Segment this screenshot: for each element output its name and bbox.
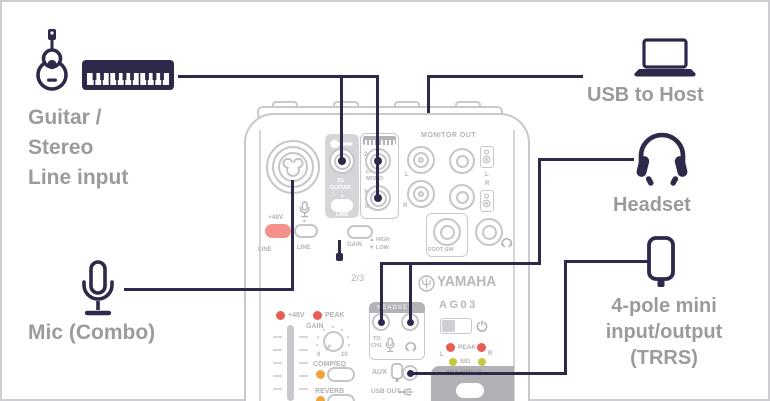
fader-tick [273,362,282,364]
gain-lever [338,240,341,254]
fader-tick [299,362,308,364]
peak-led [313,311,322,320]
monitor-phone-jack-l-inner [456,155,469,168]
meter-sig-led-r [478,358,486,366]
foot-sw-label: FOOT SW [428,248,454,254]
usb-callout-line-h [427,75,583,78]
phones-jack-inner [482,225,497,240]
knob-tick [317,336,319,338]
yamaha-logo-icon [418,275,435,292]
rca-l-label: L [405,172,409,178]
meter-peak-label: PEAK [458,345,476,352]
knob-tick [341,329,343,331]
channel-label: 2/3 [351,274,364,284]
headset-callout-line-h2 [380,262,541,265]
trrs-label-line2: input/output [570,319,758,345]
mic-callout-line-v [291,180,294,291]
jack2-l: L/ [366,170,371,176]
guitar-jack-point [338,157,346,165]
knob-tick [332,326,334,328]
guitar-label-line3: Line input [28,163,128,193]
xlr-socket-icon [281,155,305,179]
meter-peak-led-l [446,343,455,352]
comp-eq-button [327,367,355,382]
phone-icon [644,236,678,288]
mixer-panel-edge-right [513,130,515,401]
guitar-callout-line-h [178,75,379,78]
monitor-r-label: R [485,181,489,187]
trrs-label-line3: (TRRS) [570,345,758,371]
headset-callout-line-v2 [380,262,383,322]
guitar-line-switch [331,199,353,212]
power-icon [476,320,488,332]
trrs-callout-line-v [564,260,567,375]
meter-sig-label: SIG [460,359,470,365]
gain-switch-label: GAIN [347,242,362,248]
line-label-a: LINE [258,247,272,253]
stereo-jack3-point [374,194,382,202]
mic-small-icon [299,201,310,218]
connection-diagram: +48V ▲ LINE LINE 2G GUITAR ▲ LINE [0,0,770,401]
gain-high: ▲ HIGH [369,238,390,244]
knob-tick [323,329,325,331]
microphone-icon [78,260,118,322]
monitor-phone-jack-r-inner [456,191,469,204]
aux-label: AUX [372,369,387,376]
guitar-section-guitar: GUITAR [330,186,351,192]
usb-callout-label: USB to Host [587,84,704,107]
peak-led-label: PEAK [325,312,344,319]
brand-wordmark: YAMAHA [437,275,496,290]
fader-tick [299,375,308,377]
trrs-callout-label: 4-pole mini input/output (TRRS) [570,293,758,371]
keyboard-icon [82,60,174,91]
knob-tick [316,344,318,346]
headphones-icon [631,126,693,186]
mic-callout-line-h [124,288,294,291]
trrs-callout-line-h1 [564,260,648,263]
fader-tick [299,388,308,390]
jack3-r: R [365,205,369,211]
meter-sig-led-l [449,358,457,366]
monitor-l-label: L [485,172,489,178]
rca-r-label: R [403,203,407,209]
guitar-section-2g: 2G [337,179,344,185]
gain-low: ▼ LOW [369,246,389,252]
fader-tick [273,388,282,390]
phantom-led [276,311,285,320]
keyboard-tag [363,136,396,145]
fader-tick [299,349,308,351]
gain-lever-tip [336,253,343,261]
meter-l-label: L [440,352,444,358]
rca-jack-r-pin [418,191,424,197]
monitor-out-title: MONITOR OUT [421,132,476,139]
guitar-icon [34,28,70,94]
knob-tick [348,344,350,346]
guitar-label-line1: Guitar / [28,103,128,133]
headphone-small-icon [404,340,417,352]
speaker-box-r [480,190,494,212]
mixer-panel-edge-left [259,130,261,401]
guitar-section-line: LINE [336,213,349,219]
power-switch-knob [442,320,455,332]
usb-icon [398,387,415,397]
knob-tick [347,336,349,338]
guitar-section-arrow: ▲ [340,194,344,199]
jack2-mono: MONO [366,177,383,183]
to-ch1-label-ch1: CH1 [371,344,382,350]
rca-jack-l-pin [418,157,424,163]
reverb-button [327,394,355,401]
guitar-callout-line-v1 [340,75,343,163]
foot-sw-jack-inner [440,225,455,240]
switch-arrow: ▲ [302,219,306,224]
headset-callout-line-v3 [409,262,412,322]
meter-r-label: R [488,351,492,357]
headset-callout-line-h1 [538,158,634,161]
headset-callout-label: Headset [613,194,691,217]
line-label-b: LINE [297,245,311,251]
guitar-callout-label: Guitar / Stereo Line input [28,103,128,193]
comp-eq-led [316,370,325,379]
usb-out-label: USB OUT [371,389,400,396]
model-wordmark: AG03 [439,300,478,311]
gain-knob-label: GAIN [306,323,324,330]
trrs-label-line1: 4-pole mini [570,293,758,319]
usb-callout-line-v [427,75,430,113]
reverb-led [316,396,325,401]
mix-minus-button [456,383,484,398]
fader-track [287,325,294,401]
speaker-box-l [480,146,494,168]
knob-scale-0: 0 [317,352,320,358]
fader-tick [273,375,282,377]
phantom-switch [265,224,291,238]
phantom-label: +48V [268,215,283,222]
line-switch [294,224,318,238]
mic-small-icon [385,337,395,353]
phantom-led-label: +48V [288,312,305,319]
knob-scale-10: 10 [341,352,348,358]
meter-peak-led-r [477,343,486,352]
fader-tick [273,349,282,351]
guitar-callout-line-v2 [376,75,379,199]
headphone-small-icon [500,236,513,248]
trrs-callout-line-h2 [412,372,567,375]
laptop-icon [632,38,698,78]
guitar-label-line2: Stereo [28,133,128,163]
stereo-jack2-point [374,157,382,165]
mic-callout-label: Mic (Combo) [28,321,155,345]
fader-tick [273,336,282,338]
fader-tick [299,336,308,338]
headset-callout-line-v1 [538,158,541,265]
to-ch1-label-to: TO [373,337,381,343]
